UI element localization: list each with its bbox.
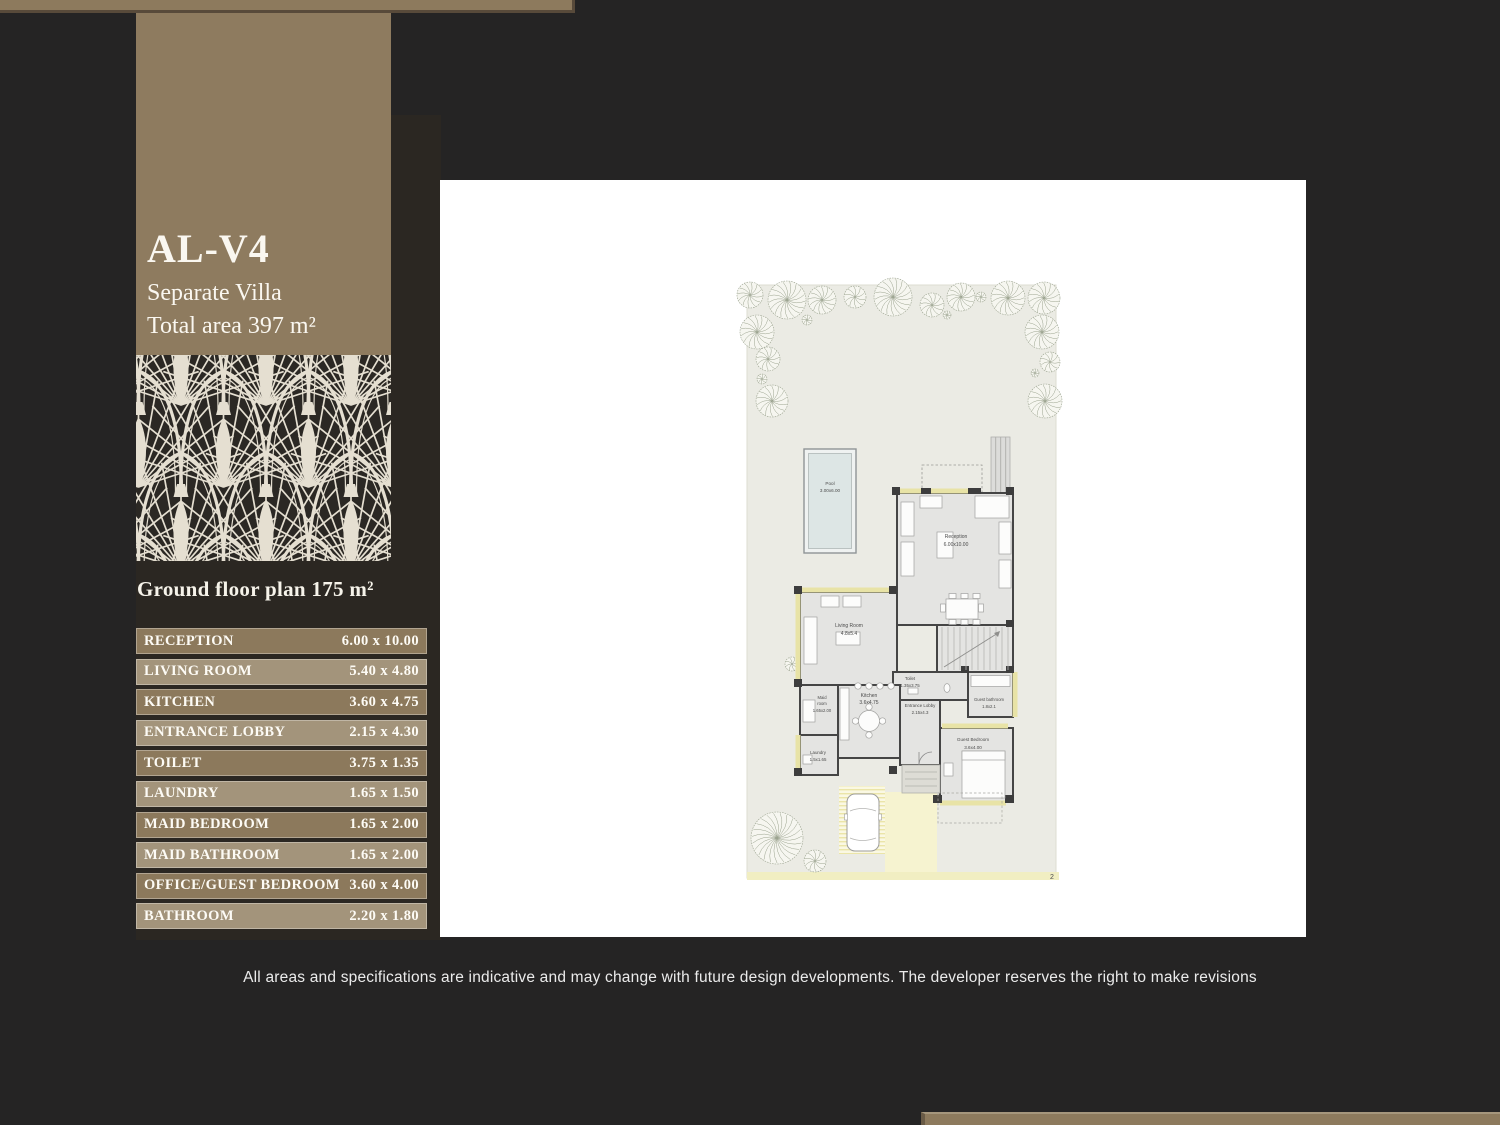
kitchen-dims: 3.6x4.75	[859, 700, 878, 706]
maid-room-dims: 1.65x2.00	[813, 708, 832, 713]
tree-icon	[1028, 282, 1060, 314]
tree-icon	[768, 281, 806, 319]
tree-icon	[943, 311, 951, 319]
tree-icon	[756, 385, 788, 417]
tree-icon	[1040, 352, 1060, 372]
room-dims: 3.60 x 4.75	[349, 694, 419, 711]
villa-header: AL-V4 Separate Villa Total area 397 m²	[136, 13, 391, 355]
laundry-dims: 1.5x1.65	[810, 757, 827, 762]
tree-icon	[1028, 384, 1062, 418]
art-deco-pattern	[136, 355, 391, 561]
toilet-label: Toilet	[905, 676, 916, 681]
room-dims: 2.20 x 1.80	[349, 908, 419, 925]
table-row: KITCHEN3.60 x 4.75	[136, 689, 427, 715]
room-dimensions-table: RECEPTION6.00 x 10.00LIVING ROOM5.40 x 4…	[136, 628, 427, 934]
room-name: LAUNDRY	[144, 785, 219, 802]
tree-icon	[756, 347, 780, 371]
toilet-dims: 1.35x3.75	[900, 683, 920, 688]
pool: Pool 3.00x6.00	[804, 449, 856, 553]
room-name: BATHROOM	[144, 908, 234, 925]
table-row: ENTRANCE LOBBY2.15 x 4.30	[136, 720, 427, 746]
tree-icon	[740, 315, 774, 349]
room-name: LIVING ROOM	[144, 663, 252, 680]
fan-pattern-graphic	[136, 355, 391, 561]
table-row: TOILET3.75 x 1.35	[136, 750, 427, 776]
room-name: OFFICE/GUEST BEDROOM	[144, 877, 340, 894]
room-dims: 6.00 x 10.00	[342, 633, 419, 650]
floor-plan-canvas: Pool 3.00x6.00	[440, 180, 1306, 937]
floor-plan-title: Ground floor plan 175 m²	[137, 577, 374, 602]
floor-plan-drawing: Pool 3.00x6.00	[440, 180, 1306, 937]
tree-icon	[751, 812, 803, 864]
table-row: LAUNDRY1.65 x 1.50	[136, 781, 427, 807]
tree-icon	[804, 850, 826, 872]
room-dims: 1.65 x 2.00	[349, 847, 419, 864]
room-dims: 1.65 x 1.50	[349, 785, 419, 802]
room-name: MAID BATHROOM	[144, 847, 280, 864]
living-dims: 4.8x5.4	[841, 631, 858, 637]
villa-total-area: Total area 397 m²	[147, 310, 391, 343]
laundry-label: Laundry	[810, 750, 827, 755]
room-name: RECEPTION	[144, 633, 234, 650]
room-name: TOILET	[144, 755, 202, 772]
room-dims: 3.60 x 4.00	[349, 877, 419, 894]
kitchen-label: Kitchen	[861, 693, 878, 699]
tree-icon	[737, 282, 763, 308]
top-accent-bar	[0, 0, 575, 13]
guest-bathroom-dims: 1.8x2.1	[982, 704, 996, 709]
table-row: OFFICE/GUEST BEDROOM3.60 x 4.00	[136, 873, 427, 899]
tree-icon	[991, 281, 1025, 315]
side-passage	[991, 437, 1010, 494]
tree-icon	[874, 278, 912, 316]
bottom-accent-bar	[921, 1112, 1500, 1125]
pool-label: Pool	[825, 481, 834, 486]
reception-dims: 6.00x10.00	[944, 542, 969, 548]
tree-icon	[808, 286, 836, 314]
page: AL-V4 Separate Villa Total area 397 m² G…	[0, 0, 1500, 1125]
tree-icon	[920, 293, 944, 317]
entrance-lobby-dims: 2.15x4.3	[912, 710, 929, 715]
reception-label: Reception	[945, 534, 968, 540]
car	[845, 794, 882, 851]
table-row: RECEPTION6.00 x 10.00	[136, 628, 427, 654]
table-row: MAID BATHROOM1.65 x 2.00	[136, 842, 427, 868]
tree-icon	[802, 315, 812, 325]
tree-icon	[1031, 369, 1039, 377]
living-label: Living Room	[835, 623, 863, 629]
room-dims: 1.65 x 2.00	[349, 816, 419, 833]
table-row: MAID BEDROOM1.65 x 2.00	[136, 812, 427, 838]
guest-bathroom-label: Guest bathroom	[974, 697, 1005, 702]
tree-icon	[1025, 315, 1059, 349]
maid-room-label2: room	[817, 701, 827, 706]
guest-bedroom-label: Guest Bedroom	[957, 737, 989, 742]
plot-edge-strip	[747, 872, 1059, 880]
villa-code: AL-V4	[147, 229, 391, 269]
plan-page-number: 2	[1050, 874, 1054, 881]
villa-type: Separate Villa	[147, 277, 391, 310]
room-dims: 5.40 x 4.80	[349, 663, 419, 680]
maid-room-label: Maid	[817, 695, 827, 700]
table-row: LIVING ROOM5.40 x 4.80	[136, 659, 427, 685]
table-row: BATHROOM2.20 x 1.80	[136, 903, 427, 929]
tree-icon	[947, 283, 975, 311]
tree-icon	[757, 374, 767, 384]
tree-icon	[976, 292, 986, 302]
room-name: KITCHEN	[144, 694, 215, 711]
room-dims: 2.15 x 4.30	[349, 724, 419, 741]
room-name: MAID BEDROOM	[144, 816, 269, 833]
guest-bedroom-dims: 3.6x4.00	[964, 745, 982, 750]
room-name: ENTRANCE LOBBY	[144, 724, 285, 741]
room-dims: 3.75 x 1.35	[349, 755, 419, 772]
entrance-lobby-label: Entrance Lobby	[905, 703, 937, 708]
pool-dims-label: 3.00x6.00	[820, 488, 841, 493]
tree-icon	[844, 286, 866, 308]
disclaimer-text: All areas and specifications are indicat…	[0, 969, 1500, 987]
